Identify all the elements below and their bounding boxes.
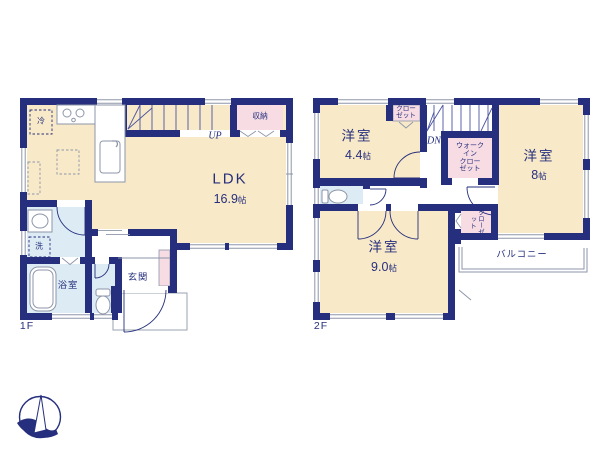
washbasin-icon <box>28 210 52 232</box>
bedroom-mid-size-unit: 帖 <box>538 171 547 181</box>
bedroom-large-size-value: 9.0 <box>371 260 388 274</box>
compass-icon <box>17 395 61 438</box>
toilet-1f-icon <box>96 289 110 314</box>
stairs-up-label: UP <box>208 130 221 141</box>
closet-top-label: クロー ゼット <box>396 106 416 121</box>
floor1-label: 1F <box>20 321 34 333</box>
bedroom-large-size: 9.0帖 <box>371 260 397 274</box>
ldk-size: 16.9帖 <box>214 192 247 206</box>
bedroom-mid-size: 8帖 <box>531 168 546 182</box>
ldk-size-unit: 帖 <box>238 195 247 205</box>
ldk-label: LDK <box>212 172 247 189</box>
entrance-label: 玄関 <box>128 272 149 282</box>
floorplan-canvas: LDK 16.9帖 収納 冷 UP 洗 浴室 玄関 1F 洋室 4.4帖 クロー… <box>0 0 600 450</box>
bathroom-label: 浴室 <box>58 280 79 290</box>
stairs-2f <box>427 105 492 131</box>
fridge-label: 冷 <box>37 118 45 127</box>
bedroom-mid-label: 洋室 <box>524 148 555 163</box>
laundry-label: 洗 <box>35 243 43 252</box>
floor2-label: 2F <box>314 321 328 333</box>
bedroom-small-size-value: 4.4 <box>345 148 362 162</box>
toilet-2f-icon <box>322 190 347 203</box>
stairs-dn-label: DN <box>427 135 441 146</box>
closet-side-label: クローゼット <box>468 209 484 235</box>
storage-label: 収納 <box>252 113 268 122</box>
bedroom-mid-size-value: 8 <box>531 168 538 182</box>
balcony-label: バルコニー <box>496 249 547 259</box>
double-door-center-stub <box>386 204 391 211</box>
bathtub-icon <box>30 267 56 311</box>
bedroom-large-label: 洋室 <box>369 239 400 254</box>
floorplan-linework <box>0 0 600 450</box>
bedroom-small-label: 洋室 <box>342 128 373 143</box>
walkin-closet-label: ウォーク イン クロー ゼット <box>456 142 484 173</box>
bedroom-small-size-unit: 帖 <box>362 151 371 161</box>
bedroom-large-size-unit: 帖 <box>388 263 397 273</box>
bedroom-small-size: 4.4帖 <box>345 148 371 162</box>
ldk-size-value: 16.9 <box>214 192 238 206</box>
